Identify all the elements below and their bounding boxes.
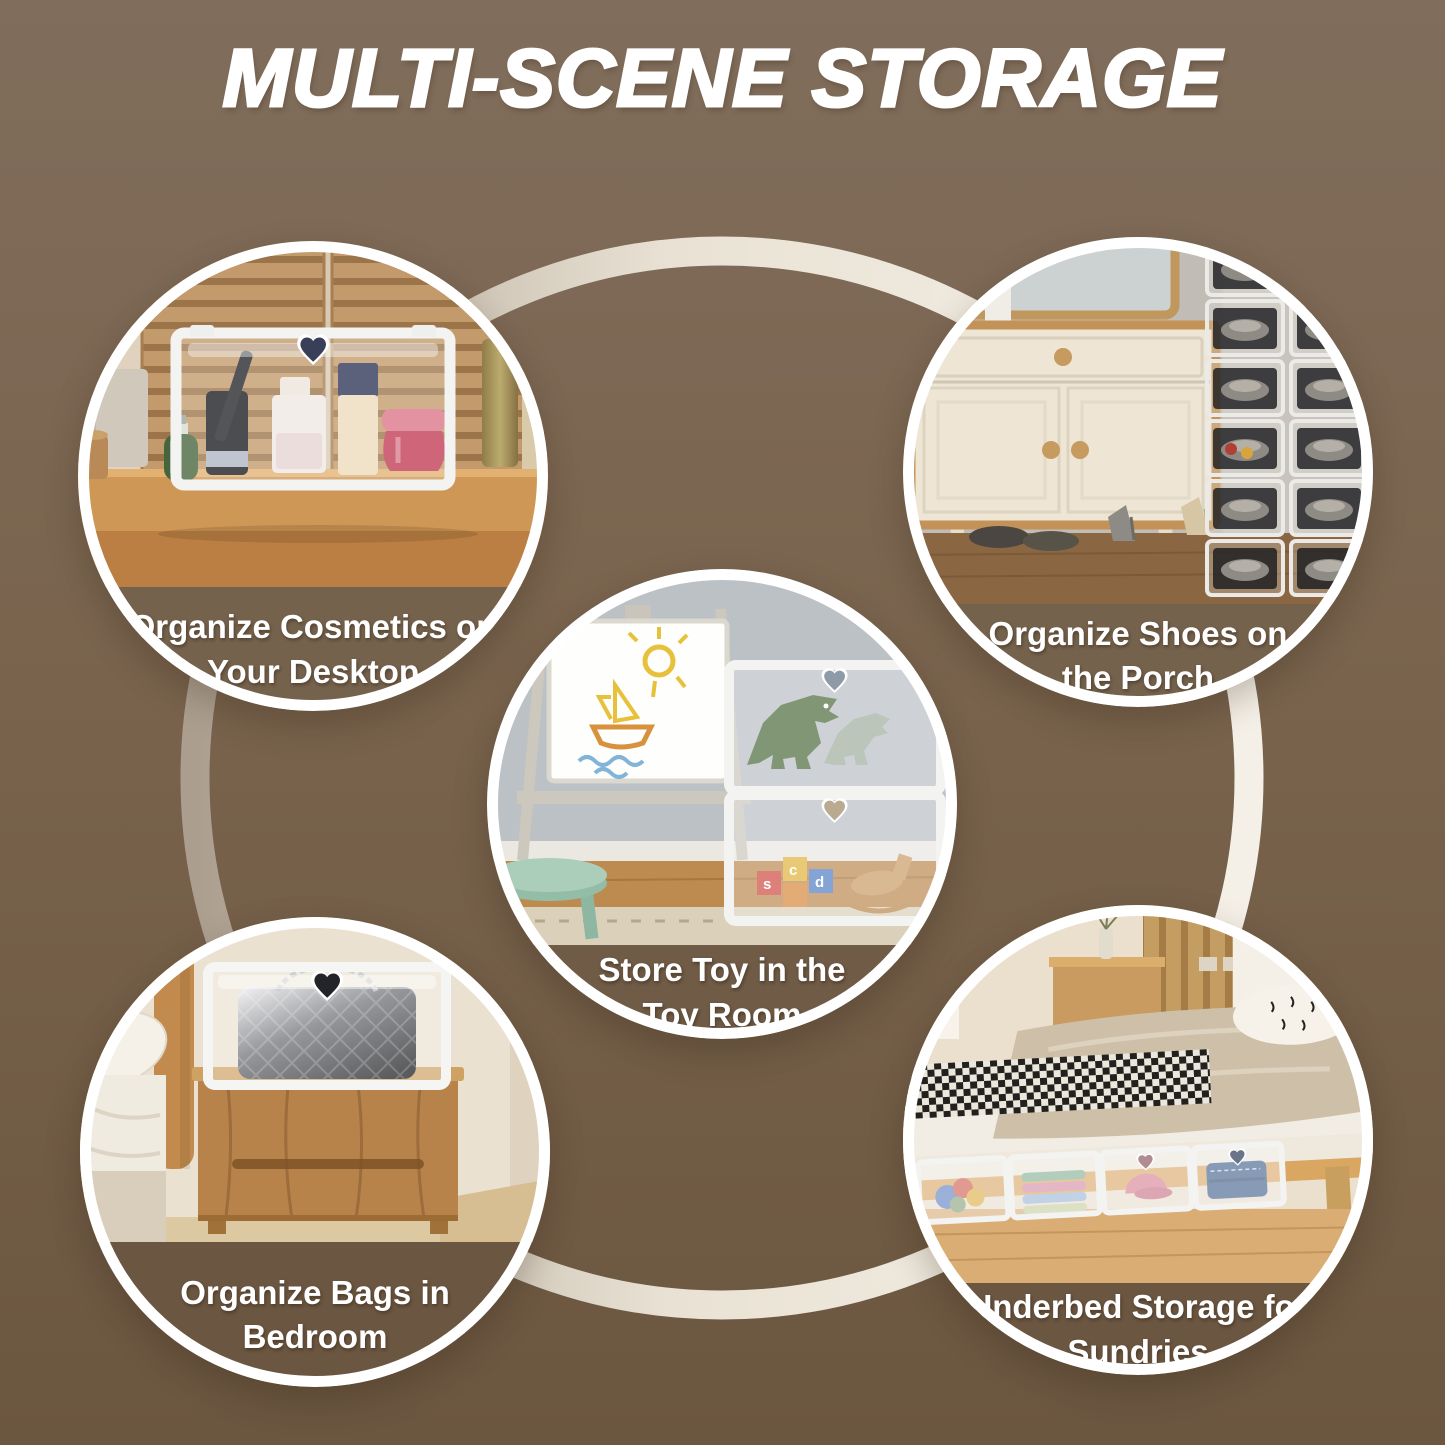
mirror xyxy=(931,237,1175,325)
caption-line: Organize Cosmetics on xyxy=(130,606,497,647)
caption-line: Toy Room xyxy=(643,994,802,1035)
caption-line: Bedroom xyxy=(243,1316,388,1357)
scene-circle-bags: Organize Bags in Bedroom xyxy=(80,917,550,1387)
cap-box xyxy=(1101,1148,1192,1213)
scene-caption: Organize Shoes on the Porch xyxy=(903,604,1373,707)
caption-line: the Porch xyxy=(1062,657,1214,698)
cosmetics-photo xyxy=(78,241,548,587)
clear-cosmetic-box xyxy=(176,325,450,485)
scene-circle-shoes: Organize Shoes on the Porch xyxy=(903,237,1373,707)
page-title: MULTI-SCENE STORAGE xyxy=(0,32,1445,126)
underbed-photo xyxy=(903,905,1373,1283)
dinosaur-box xyxy=(729,665,941,791)
bags-photo xyxy=(80,917,550,1242)
caption-line: Underbed Storage for xyxy=(968,1286,1307,1327)
caption-line: Organize Shoes on xyxy=(989,613,1288,654)
scene-caption: Underbed Storage for Sundries xyxy=(903,1283,1373,1375)
caption-line: Store Toy in the xyxy=(599,949,846,990)
jeans-box xyxy=(1193,1143,1284,1208)
toy-boxes: s c d xyxy=(729,665,941,921)
scene-caption: Store Toy in the Toy Room xyxy=(487,945,957,1039)
caption-line: Organize Bags in xyxy=(180,1272,450,1313)
towels-box xyxy=(1009,1153,1100,1218)
clear-bag-box xyxy=(208,967,446,1085)
scene-circle-toys: s c d Store Toy in the Toy Room xyxy=(487,569,957,1039)
caption-line: Sundries xyxy=(1067,1331,1208,1372)
clothes-box xyxy=(918,1158,1009,1223)
caption-line: Your Desktop xyxy=(207,651,419,692)
marketing-poster: MULTI-SCENE STORAGE xyxy=(0,0,1445,1445)
scene-caption: Organize Cosmetics on Your Desktop xyxy=(78,587,548,711)
blocks-box: s c d xyxy=(729,795,941,921)
scene-circle-cosmetics: Organize Cosmetics on Your Desktop xyxy=(78,241,548,711)
toys-photo: s c d xyxy=(487,569,957,945)
scene-caption: Organize Bags in Bedroom xyxy=(80,1242,550,1387)
scene-circle-underbed: Underbed Storage for Sundries xyxy=(903,905,1373,1375)
nightstand xyxy=(192,1067,464,1234)
shoes-photo xyxy=(903,237,1373,604)
